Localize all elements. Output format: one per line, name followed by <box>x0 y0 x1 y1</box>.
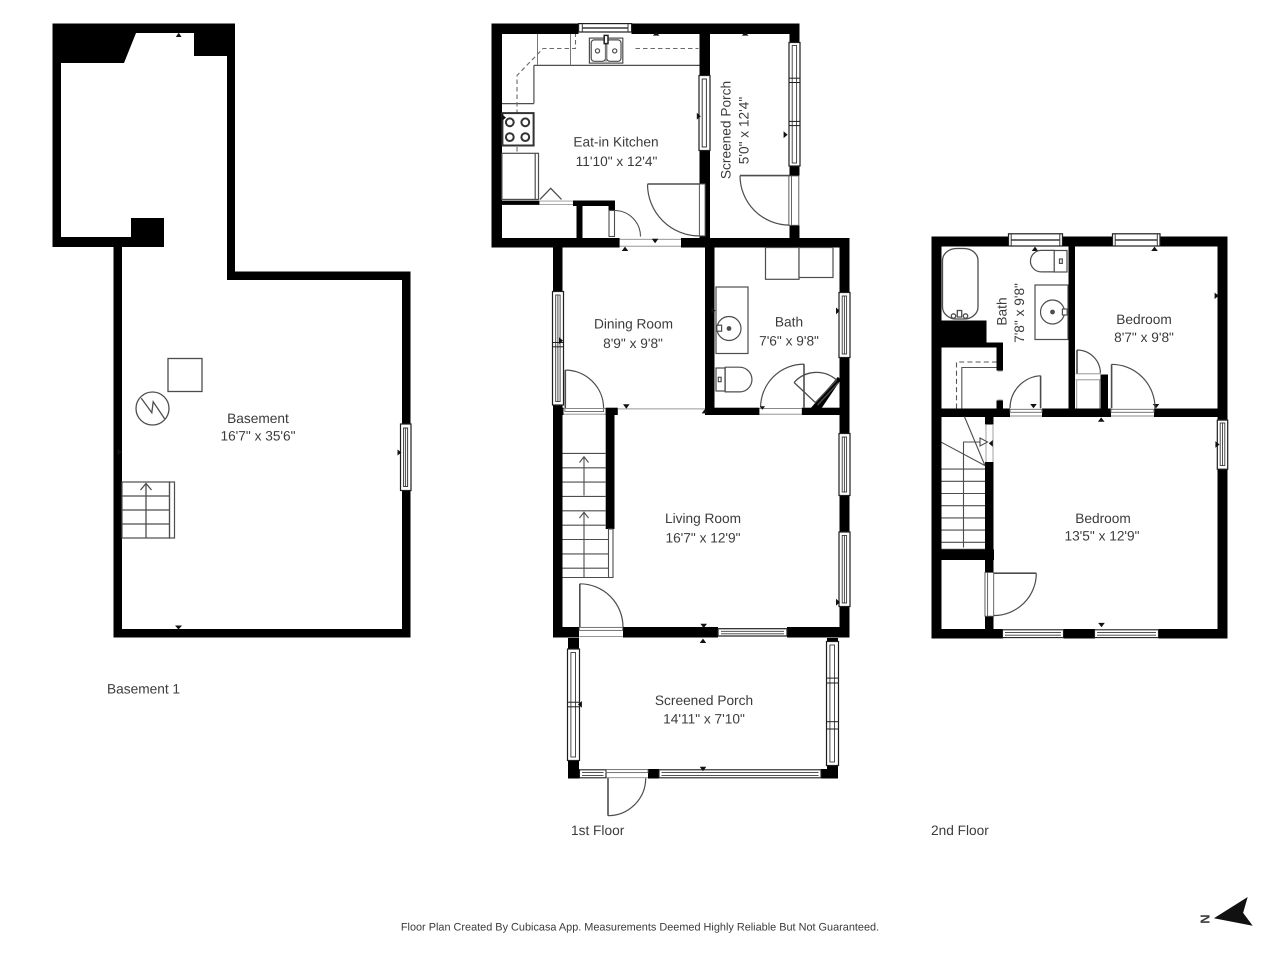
svg-text:Bedroom: Bedroom <box>1075 511 1131 526</box>
svg-text:16'7" x 35'6": 16'7" x 35'6" <box>220 429 295 444</box>
svg-text:Basement 1: Basement 1 <box>107 682 180 697</box>
svg-text:11'10" x 12'4": 11'10" x 12'4" <box>576 154 658 169</box>
svg-text:Living Room: Living Room <box>665 511 741 526</box>
svg-text:N: N <box>1198 914 1213 923</box>
svg-text:16'7" x 12'9": 16'7" x 12'9" <box>665 531 740 546</box>
svg-text:13'5" x 12'9": 13'5" x 12'9" <box>1064 529 1139 544</box>
svg-text:Bath: Bath <box>775 315 803 330</box>
svg-text:Eat-in Kitchen: Eat-in Kitchen <box>573 135 658 150</box>
svg-text:Floor Plan Created By Cubicasa: Floor Plan Created By Cubicasa App. Meas… <box>401 922 879 934</box>
svg-text:Bedroom: Bedroom <box>1116 312 1172 327</box>
svg-text:7'6" x 9'8": 7'6" x 9'8" <box>759 334 819 349</box>
svg-text:8'9" x 9'8": 8'9" x 9'8" <box>603 336 663 351</box>
svg-text:5'0" x 12'4": 5'0" x 12'4" <box>737 97 752 165</box>
svg-text:Bath: Bath <box>995 297 1010 325</box>
svg-text:Dining Room: Dining Room <box>594 317 673 332</box>
svg-text:14'11" x 7'10": 14'11" x 7'10" <box>663 712 745 727</box>
svg-text:8'7" x 9'8": 8'7" x 9'8" <box>1114 330 1174 345</box>
svg-text:2nd Floor: 2nd Floor <box>931 823 989 838</box>
svg-text:1st Floor: 1st Floor <box>571 823 625 838</box>
svg-text:7'8" x 9'8": 7'8" x 9'8" <box>1012 283 1027 343</box>
svg-text:Basement: Basement <box>227 411 289 426</box>
svg-text:Screened Porch: Screened Porch <box>719 81 734 179</box>
svg-text:Screened Porch: Screened Porch <box>655 693 753 708</box>
